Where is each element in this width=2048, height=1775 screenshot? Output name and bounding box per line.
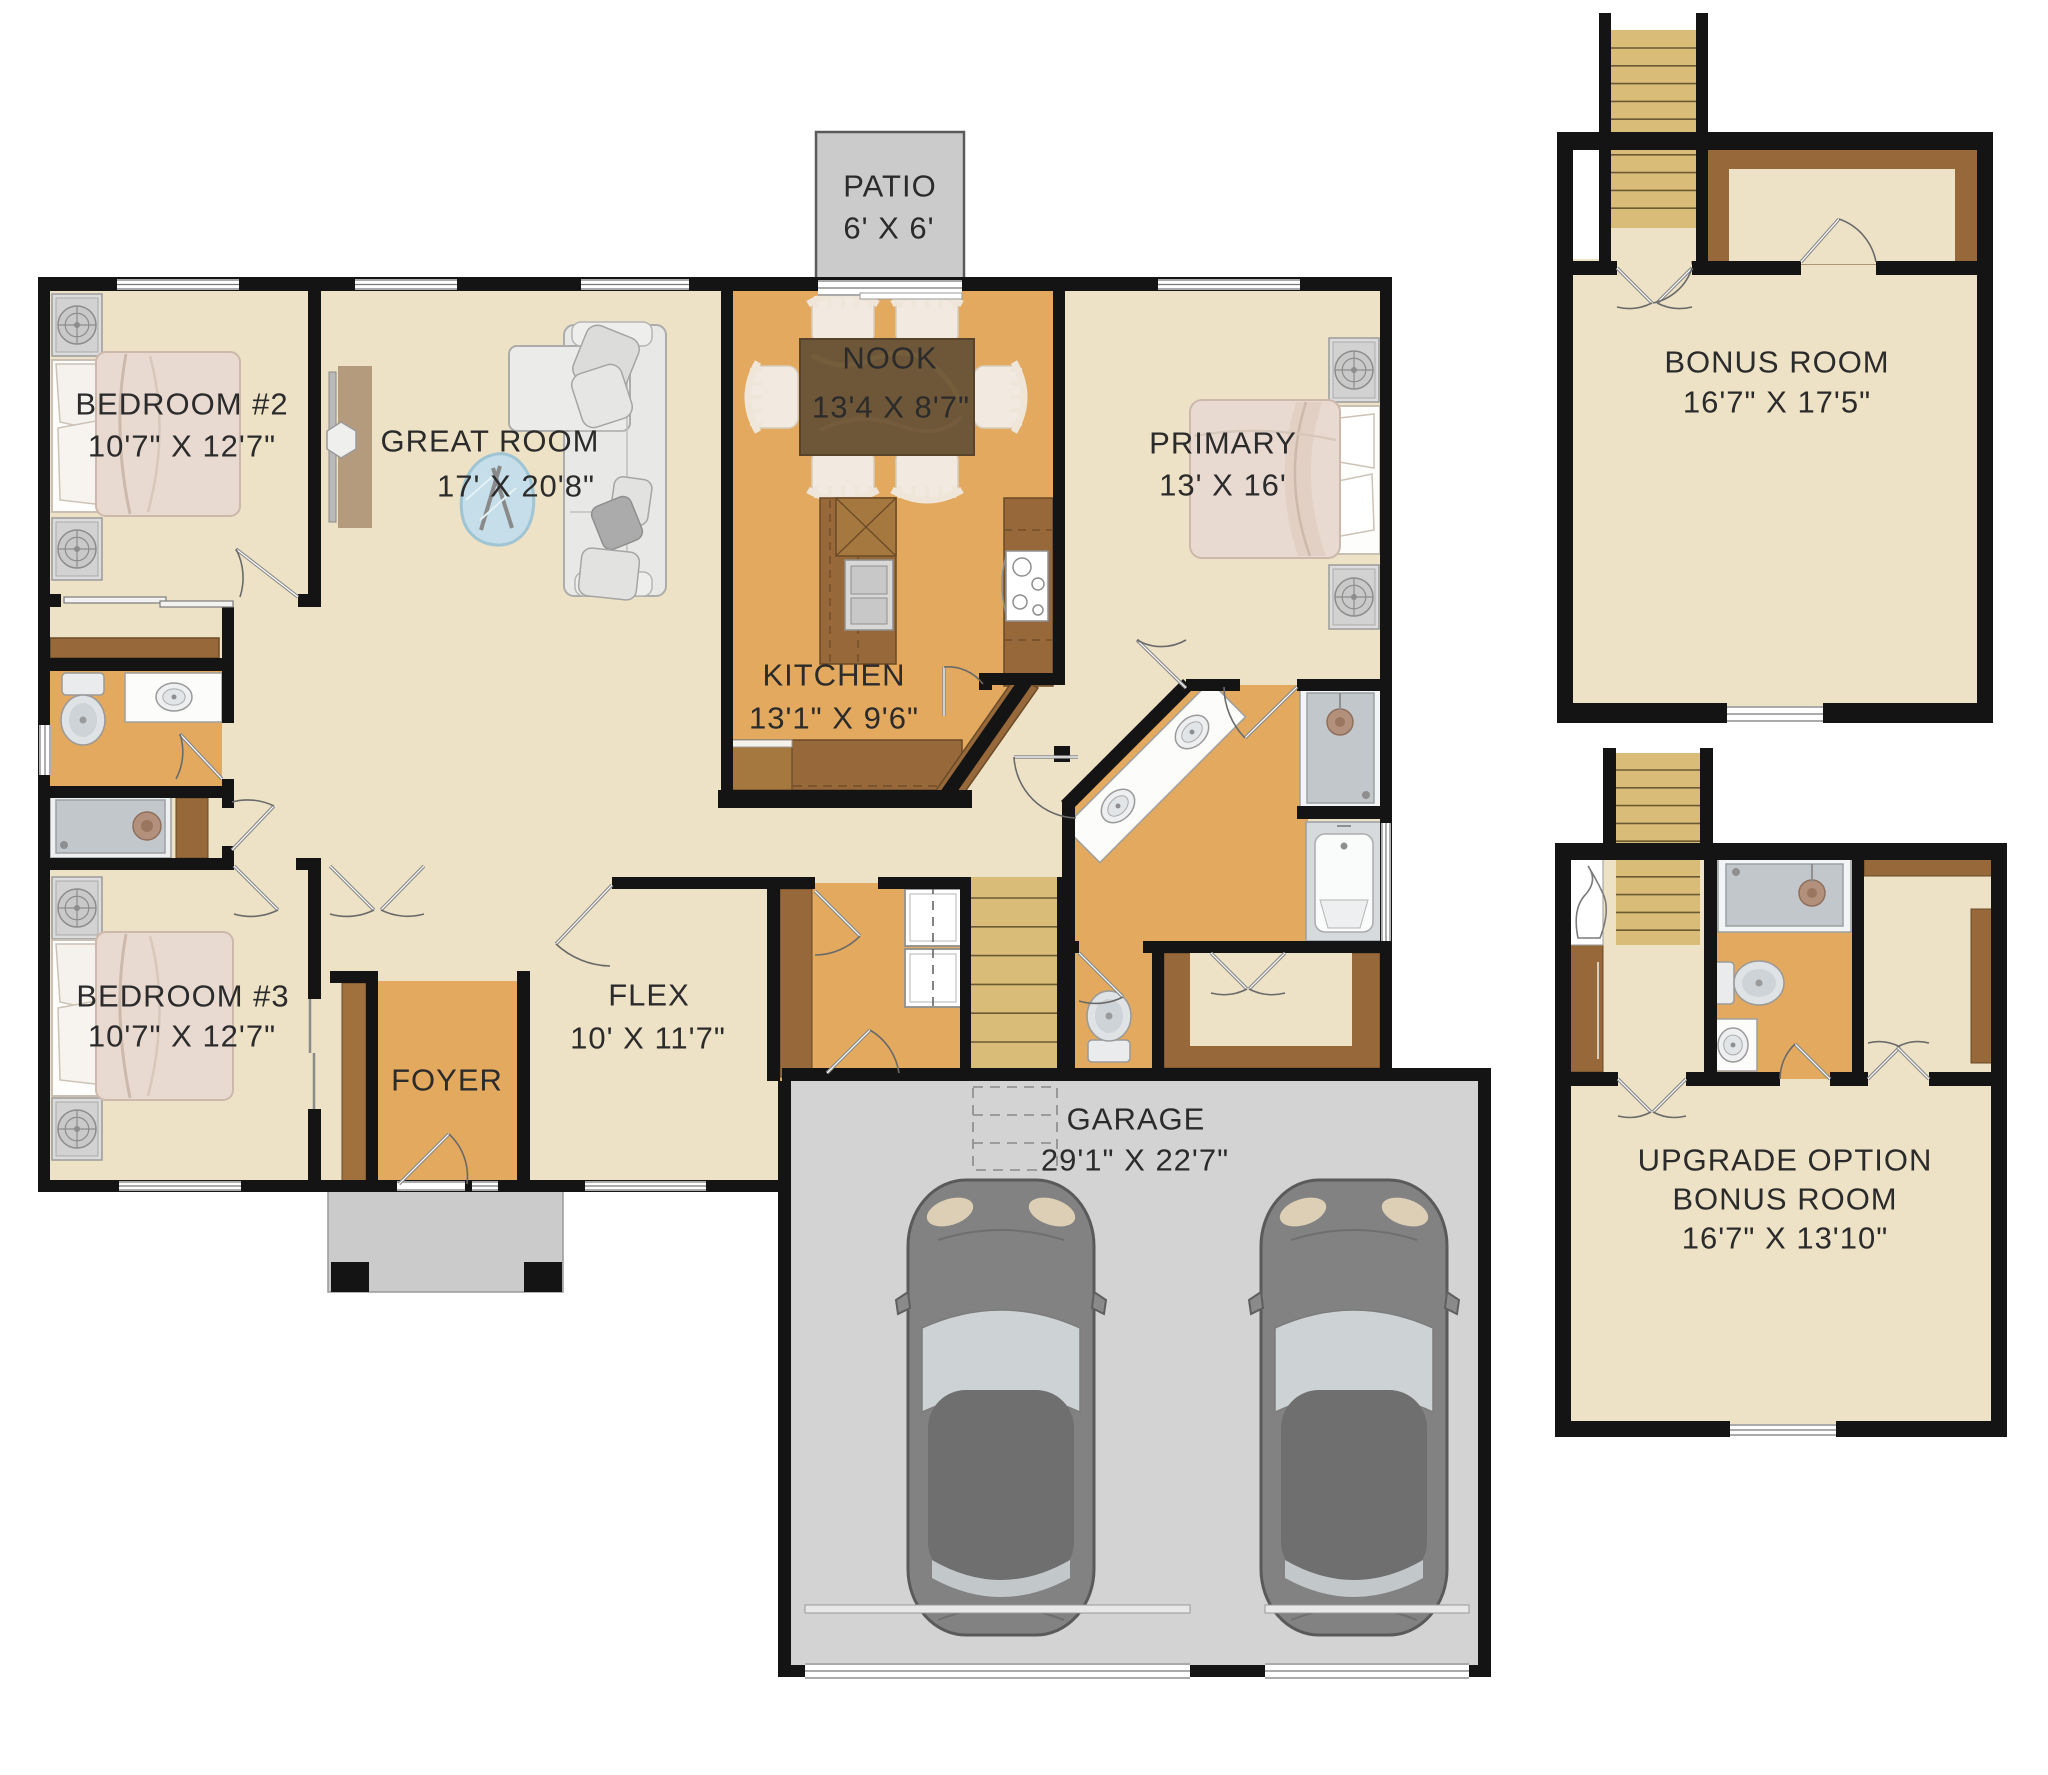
svg-text:BONUS ROOM: BONUS ROOM (1672, 1182, 1897, 1217)
svg-text:10'7" X 12'7": 10'7" X 12'7" (88, 1019, 276, 1054)
svg-text:10' X 11'7": 10' X 11'7" (570, 1021, 726, 1056)
svg-text:NOOK: NOOK (842, 341, 937, 376)
svg-text:BEDROOM #2: BEDROOM #2 (75, 387, 288, 422)
svg-text:16'7" X 17'5": 16'7" X 17'5" (1683, 385, 1871, 420)
svg-text:13' X 16': 13' X 16' (1159, 468, 1287, 503)
svg-text:BEDROOM #3: BEDROOM #3 (76, 979, 289, 1014)
svg-text:FLEX: FLEX (608, 978, 690, 1013)
svg-text:UPGRADE OPTION: UPGRADE OPTION (1638, 1143, 1933, 1178)
svg-text:PATIO: PATIO (843, 169, 936, 204)
svg-text:PRIMARY: PRIMARY (1149, 426, 1297, 461)
svg-text:13'1" X 9'6": 13'1" X 9'6" (749, 701, 919, 736)
svg-text:16'7" X 13'10": 16'7" X 13'10" (1682, 1221, 1888, 1256)
svg-text:13'4 X 8'7": 13'4 X 8'7" (812, 390, 970, 425)
svg-text:FOYER: FOYER (391, 1063, 503, 1098)
svg-text:17' X 20'8": 17' X 20'8" (437, 469, 595, 504)
svg-text:GARAGE: GARAGE (1067, 1102, 1206, 1137)
svg-text:10'7" X 12'7": 10'7" X 12'7" (88, 429, 276, 464)
svg-text:29'1" X 22'7": 29'1" X 22'7" (1041, 1143, 1229, 1178)
svg-text:BONUS ROOM: BONUS ROOM (1664, 345, 1889, 380)
svg-text:6' X 6': 6' X 6' (843, 211, 934, 246)
svg-text:GREAT ROOM: GREAT ROOM (381, 424, 600, 459)
svg-text:KITCHEN: KITCHEN (762, 658, 905, 693)
